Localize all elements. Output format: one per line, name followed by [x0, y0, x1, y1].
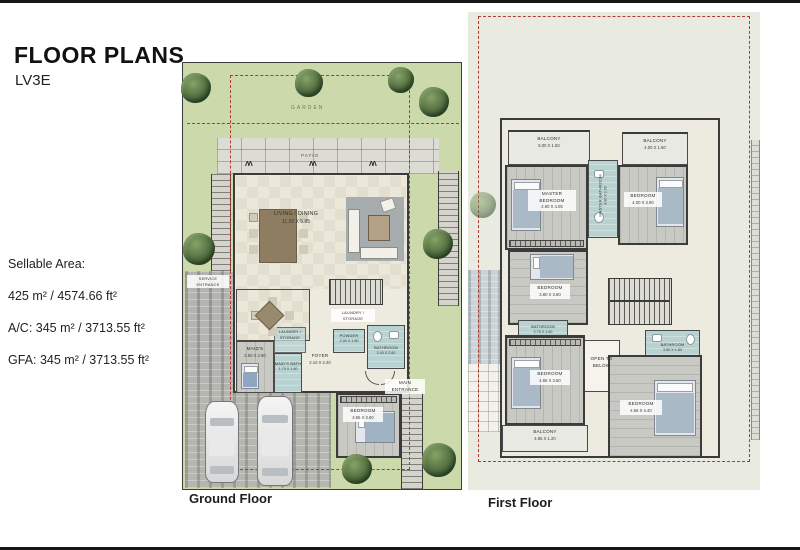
bed: [511, 179, 541, 231]
tree-graphic: [388, 67, 414, 93]
column-marker: ΛΛ: [245, 161, 251, 168]
ground-floor-plan: GARDEN PATIO ΛΛ ΛΛ ΛΛ SERVICE ENTRANCE: [182, 62, 462, 490]
wc-fixture: [373, 331, 382, 342]
sellable-area-value: 425 m² / 4574.66 ft²: [8, 280, 149, 312]
bed-cover: [365, 413, 394, 442]
page-subtitle: LV3E: [15, 72, 51, 89]
column-marker: ΛΛ: [369, 161, 375, 168]
car-graphic: [257, 396, 293, 486]
column-marker: ΛΛ: [309, 161, 315, 168]
bed-cover: [243, 373, 257, 387]
bed-cover: [656, 393, 694, 433]
car-windshield: [262, 415, 288, 423]
top-border: [0, 0, 800, 3]
dining-chairs: [249, 213, 258, 222]
car-windshield: [210, 418, 234, 426]
tree-graphic: [422, 443, 456, 477]
gfa-area-value: GFA: 345 m² / 3713.55 ft²: [8, 344, 149, 376]
bed: [654, 380, 696, 436]
bed-cover: [513, 190, 540, 228]
ground-floor-caption: Ground Floor: [189, 491, 272, 506]
tree-graphic: [419, 87, 449, 117]
first-floor-plan: BALCONY 5.00 X 1.50 BALCONY 4.00 X 1.50 …: [468, 12, 760, 490]
car-roof: [209, 430, 235, 456]
bed-pillow: [514, 360, 540, 368]
area-info: Sellable Area: 425 m² / 4574.66 ft² A/C:…: [8, 248, 149, 376]
bed-cover: [540, 256, 573, 278]
wc-fixture: [686, 334, 695, 345]
car-roof: [261, 428, 289, 456]
car-rear-window: [262, 468, 288, 476]
sellable-area-heading: Sellable Area:: [8, 248, 149, 280]
car-graphic: [205, 401, 239, 483]
sink-fixture: [594, 170, 604, 178]
bed-pillow: [244, 366, 258, 373]
bed-pillow: [659, 180, 683, 188]
ac-area-value: A/C: 345 m² / 3713.55 ft²: [8, 312, 149, 344]
car-rear-window: [210, 466, 234, 474]
sink-fixture: [652, 334, 662, 342]
bed-pillow: [657, 383, 693, 392]
side-walkway-right: [751, 140, 760, 440]
bed-pillow: [358, 414, 365, 428]
patio-label: PATIO: [301, 153, 319, 158]
bed-cover: [658, 188, 683, 224]
bed: [241, 363, 259, 389]
bed: [656, 177, 684, 227]
bed-pillow: [514, 182, 540, 190]
first-floor-caption: First Floor: [488, 495, 552, 510]
bed: [530, 254, 574, 280]
page-title: FLOOR PLANS: [14, 42, 184, 69]
bed: [355, 411, 395, 443]
garden-label: GARDEN: [291, 105, 324, 111]
bed-pillow: [533, 257, 540, 269]
wc-fixture: [594, 212, 604, 223]
sink-fixture: [389, 331, 399, 339]
floor-plans-page: FLOOR PLANS LV3E Sellable Area: 425 m² /…: [0, 0, 800, 550]
sofa: [360, 247, 398, 259]
tree-graphic: [181, 73, 211, 103]
sofa: [348, 209, 360, 253]
tree-graphic: [342, 454, 372, 484]
bed-cover: [513, 368, 540, 406]
coffee-table: [368, 215, 390, 241]
side-walkway-left: [211, 174, 231, 271]
dining-table: [259, 209, 297, 263]
garden-boundary-line: [187, 123, 459, 124]
bed: [511, 357, 541, 409]
